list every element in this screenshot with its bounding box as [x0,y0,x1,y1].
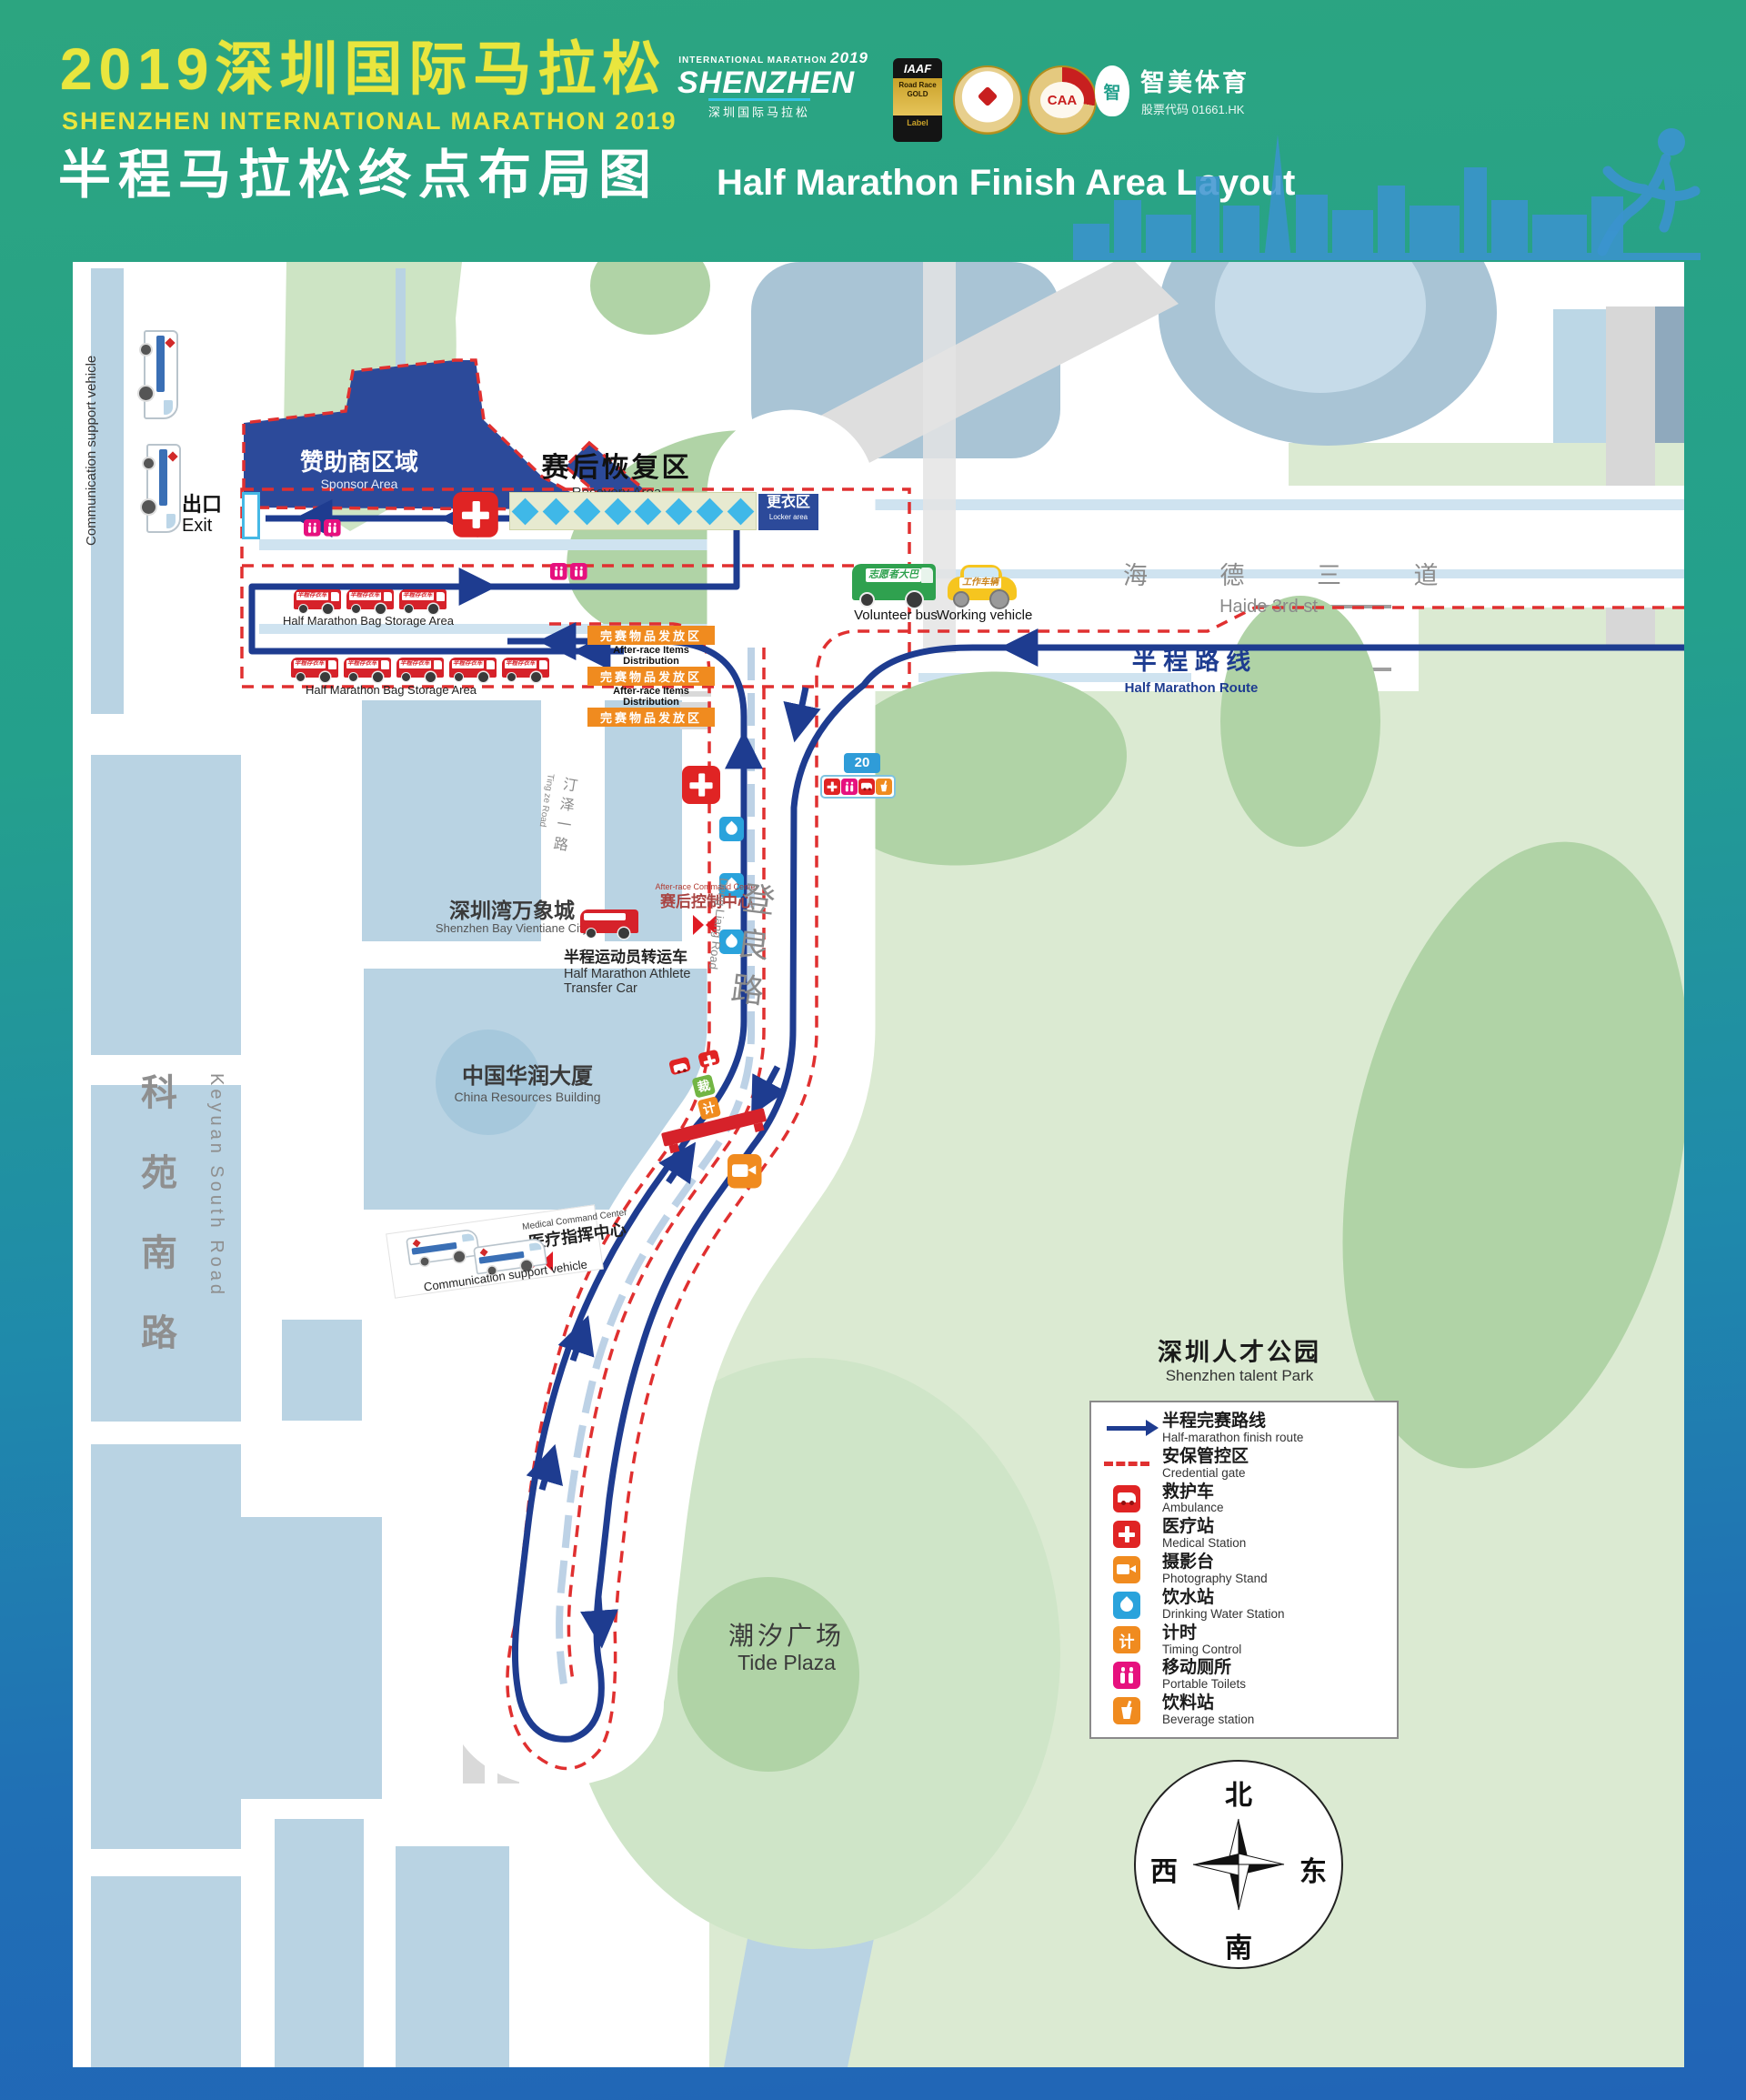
compass-star [1184,1810,1293,1919]
water-drop-icon [1113,1592,1140,1619]
zhimei-name: 智美体育 [1140,69,1249,97]
van-emblem-icon [165,337,175,347]
tide-plaza-label: 潮汐广场 Tide Plaza [682,1622,891,1675]
compass-south: 南 [1225,1925,1252,1965]
badge-emblem-icon [978,86,998,107]
bag-storage-area-label-2: Half Marathon Bag Storage Area [259,684,523,698]
legend-item-drinking-water: 饮水站Drinking Water Station [1091,1589,1397,1622]
exit-label: 出口 Exit [182,493,236,537]
bag-storage-bus: 半程存衣车 [344,658,391,678]
compass-north: 北 [1225,1773,1252,1813]
camera-icon [1113,1556,1140,1583]
compass-rose: 北 南 西 东 [1134,1760,1343,1969]
logo-intl-text: INTERNATIONAL MARATHON [678,55,827,65]
support-van-1 [144,330,178,419]
bag-storage-bus: 半程存衣车 [294,589,341,609]
legend-item-beverage: 饮料站Beverage station [1091,1694,1397,1727]
iaaf-gold-label-badge: IAAF Road Race GOLD Label [893,58,942,142]
event-title-zh: 2019深圳国际马拉松 [60,36,667,104]
medical-station-icon [682,766,720,804]
legend-item-toilets: 移动厕所Portable Toilets [1091,1659,1397,1692]
iaaf-badge-bottom: Label [893,118,942,127]
beverage-icon [1113,1697,1140,1724]
recovery-diamond-strip [509,492,757,530]
bag-storage-bus: 半程存衣车 [396,658,444,678]
athletics-association-badge [953,65,1022,135]
toilets-icon [841,779,858,795]
route-arrow-icon [1107,1426,1147,1431]
half-marathon-route-label-zh: 半 程 路 线 [1078,648,1305,676]
credential-dash-icon [1104,1462,1149,1466]
timing-box-icon: 计 [697,1096,722,1120]
beverage-icon [876,779,892,795]
medical-icon [1113,1521,1140,1548]
legend: 半程完赛路线Half-marathon finish route 安保管控区Cr… [1089,1401,1399,1739]
communication-support-vehicle-label-top: Communication support vehicle [84,313,99,546]
km-20-marker: 20 [844,753,880,773]
iaaf-badge-title: IAAF [893,58,942,75]
logo-name-zh: 深圳国际马拉松 [708,98,810,120]
sponsor-area-label: 赞助商区域 Sponsor Area [277,449,441,491]
van-emblem-icon [480,1248,488,1256]
portable-toilets-icons [550,563,597,590]
locker-area-label: 更衣区 Locker area [757,492,820,532]
legend-item-ambulance: 救护车Ambulance [1091,1483,1397,1516]
distribution-area-stack: 完赛物品发放区 After-race Items Distribution 完赛… [587,626,715,727]
van-emblem-icon [167,451,177,461]
referee-box-icon: 裁 [691,1074,716,1099]
keyuan-road-label: 科苑南路 Keyuan South Road [129,1073,226,1437]
zhimei-stock-code: 股票代码 01661.HK [1141,104,1244,117]
working-vehicle-label: Working vehicle [918,608,1050,623]
legend-item-finish-route: 半程完赛路线Half-marathon finish route [1091,1412,1397,1445]
zhimei-footprint-icon: 智 [1095,65,1129,116]
legend-item-timing: 计 计时Timing Control [1091,1624,1397,1657]
event-title-en: SHENZHEN INTERNATIONAL MARATHON 2019 [62,107,677,136]
iaaf-badge-mid: Road Race GOLD [893,78,942,116]
compass-west: 西 [1150,1849,1178,1889]
working-vehicle: 工作车辆 [948,577,1017,600]
page-title-zh: 半程马拉松终点布局图 [58,146,658,206]
poster: 2019深圳国际马拉松 SHENZHEN INTERNATIONAL MARAT… [0,0,1746,2100]
van-emblem-icon [413,1239,421,1247]
bag-storage-bus: 半程存衣车 [399,589,447,609]
portable-toilets-icons [304,519,351,547]
legend-item-photography: 摄影台Photography Stand [1091,1553,1397,1586]
half-marathon-route-label-en: Half Marathon Route [1078,680,1305,696]
china-resources-label: 中国华润大厦 China Resources Building [414,1064,641,1104]
talent-park-label: 深圳人才公园 Shenzhen talent Park [1085,1339,1394,1385]
bag-storage-bus: 半程存衣车 [449,658,497,678]
caa-badge-text: CAA [1040,82,1084,118]
medical-icon [824,779,840,795]
legend-item-medical-station: 医疗站Medical Station [1091,1518,1397,1551]
haide-road-label-en: Haide 3rd st [1132,597,1405,618]
photography-stand-icon [727,1154,762,1189]
bag-storage-bus: 半程存衣车 [502,658,549,678]
bag-storage-bus: 半程存衣车 [346,589,394,609]
volunteer-bus: 志愿者大巴 [852,564,936,600]
shenzhen-marathon-logo: INTERNATIONAL MARATHON 2019 SHENZHEN 深圳国… [677,49,868,121]
haide-road-label-zh: 海 德 三 道 [1123,562,1432,590]
support-van-2 [146,444,181,533]
toilets-icon [1113,1662,1140,1689]
legend-item-credential-gate: 安保管控区Credential gate [1091,1448,1397,1481]
ambulance-icon [858,779,875,795]
skyline-decoration [1073,116,1701,260]
km-20-services-strip [820,775,896,799]
medical-icon [697,1050,720,1069]
bag-storage-bus: 半程存衣车 [291,658,338,678]
logo-name-en: SHENZHEN [677,67,868,98]
ambulance-icon [668,1057,691,1076]
exit-gate-marker [242,492,260,539]
ambulance-icon [1113,1485,1140,1512]
logo-year: 2019 [830,49,868,66]
bag-storage-area-label-1: Half Marathon Bag Storage Area [236,615,500,628]
athlete-transfer-bus [580,909,638,933]
timing-icon: 计 [1113,1626,1140,1653]
drinking-water-icon [719,817,744,841]
medical-station-icon [453,492,498,538]
compass-east: 东 [1299,1849,1327,1889]
